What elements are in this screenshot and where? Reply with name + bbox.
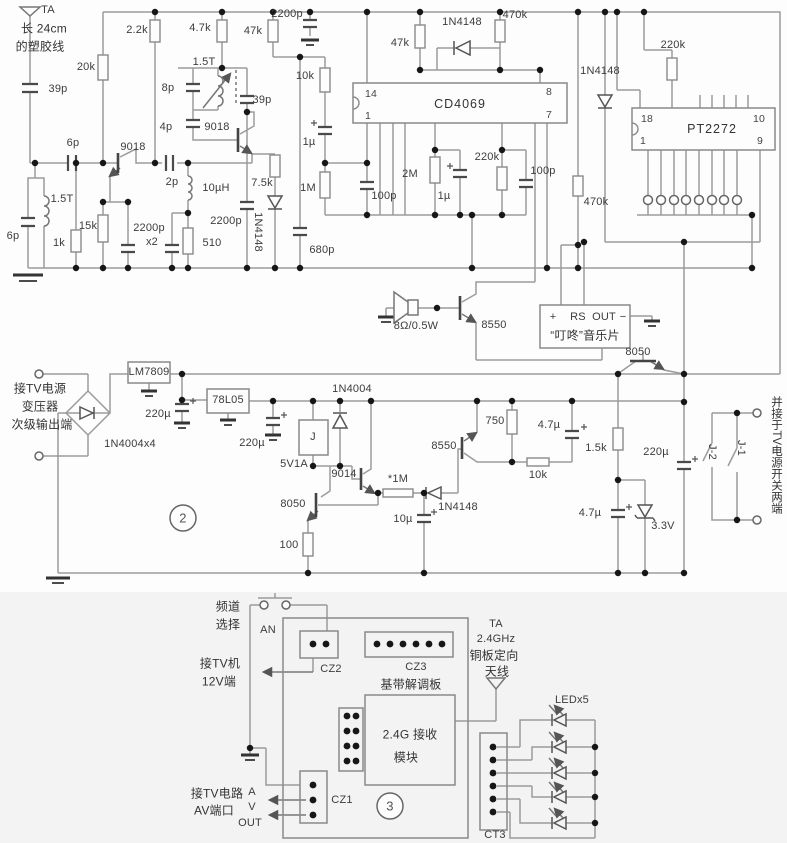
label-cap-2200p-3: 2200p bbox=[271, 8, 303, 20]
label-cz2: CZ2 bbox=[320, 663, 341, 675]
label-cap-100p-1: 100p bbox=[371, 190, 396, 202]
label-pin-7: 7 bbox=[546, 109, 552, 121]
label-res-10k-1: 10k bbox=[296, 70, 314, 82]
label-x2: x2 bbox=[146, 236, 158, 248]
schematic-canvas bbox=[0, 0, 787, 843]
label-speaker: 8Ω/0.5W bbox=[394, 320, 438, 332]
label-cap-220u-2: 220µ bbox=[239, 437, 265, 449]
label-module-2: 模块 bbox=[394, 749, 418, 766]
label-res-750: 750 bbox=[486, 415, 505, 427]
label-antenna2-type: 铜板定向 bbox=[470, 647, 519, 664]
label-pin-8: 8 bbox=[546, 86, 552, 98]
label-antenna2-freq: 2.4GHz bbox=[477, 633, 516, 645]
label-cz1: CZ1 bbox=[331, 794, 352, 806]
label-music-plus: + bbox=[550, 311, 557, 323]
label-res-15k: 15k bbox=[79, 220, 97, 232]
label-q8550-1: 8550 bbox=[481, 319, 506, 331]
label-coil-10uh: 10µH bbox=[202, 182, 229, 194]
label-pin-10: 10 bbox=[753, 113, 765, 125]
label-res-2m: 2M bbox=[402, 168, 418, 180]
label-pin-1: 1 bbox=[365, 110, 371, 122]
label-cap-8p: 8p bbox=[162, 82, 175, 94]
label-q8050-2: 8050 bbox=[280, 498, 305, 510]
label-music-out: OUT bbox=[592, 311, 616, 323]
label-pin-14: 14 bbox=[365, 88, 377, 100]
label-channel-1: 频道 bbox=[216, 598, 240, 615]
label-relay-contact-j2: J-2 bbox=[706, 444, 718, 460]
label-pin-9: 9 bbox=[757, 135, 763, 147]
label-ic-cd4069: CD4069 bbox=[434, 97, 486, 111]
label-q8050-3: 8050 bbox=[625, 346, 650, 358]
label-res-1k: 1k bbox=[53, 237, 65, 249]
label-v: V bbox=[248, 801, 256, 813]
label-tv12-1: 接TV机 bbox=[200, 655, 240, 672]
label-cap-2p: 2p bbox=[166, 176, 179, 188]
label-pin-18: 18 bbox=[641, 113, 653, 125]
label-res-7.5k: 7.5k bbox=[251, 177, 273, 189]
label-av-2: AV端口 bbox=[194, 802, 234, 819]
label-res-220k-2: 220k bbox=[661, 39, 686, 51]
label-music-chip: “叮咚”音乐片 bbox=[550, 327, 619, 344]
label-q8550-2: 8550 bbox=[431, 440, 456, 452]
label-q9018-2: 9018 bbox=[204, 121, 229, 133]
label-q9014: 9014 bbox=[331, 468, 356, 480]
label-power-in-2: 变压器 bbox=[22, 398, 59, 415]
label-ct3: CT3 bbox=[484, 829, 505, 841]
label-baseband-board: 基带解调板 bbox=[380, 676, 441, 693]
label-cap-6p-2: 6p bbox=[7, 230, 20, 242]
label-78l05: 78L05 bbox=[212, 394, 244, 406]
label-res-470k-1: 470k bbox=[503, 9, 528, 21]
label-res-47k-1: 47k bbox=[244, 25, 262, 37]
label-d-1n4148-1: 1N4148 bbox=[252, 212, 264, 252]
label-d-1n4148-4: 1N4148 bbox=[438, 501, 478, 513]
label-module-1: 2.4G 接收 bbox=[383, 726, 438, 743]
label-d-1n4148-2: 1N4148 bbox=[442, 16, 482, 28]
label-5v1a: 5V1A bbox=[280, 458, 308, 470]
label-cap-39p-1: 39p bbox=[49, 83, 68, 95]
label-res-1.5k: 1.5k bbox=[585, 442, 607, 454]
label-d-1n4004: 1N4004 bbox=[332, 383, 372, 395]
label-section-2: 2 bbox=[179, 511, 186, 526]
label-cap-1u-2: 1µ bbox=[438, 190, 451, 202]
label-relay-j: J bbox=[310, 431, 316, 443]
label-cap-2200p-x2: 2200p bbox=[133, 222, 165, 234]
label-power-in-1: 接TV电源 bbox=[14, 380, 66, 397]
label-cap-39p-2: 39p bbox=[253, 94, 272, 106]
label-zener-3.3v: 3.3V bbox=[651, 520, 674, 532]
label-cap-220u-3: 220µ bbox=[643, 446, 669, 458]
label-coil-1.5t-2: 1.5T bbox=[193, 56, 216, 68]
label-parallel-tv-switch: 并接于TV电源开关两端 bbox=[768, 396, 784, 514]
label-cap-4p: 4p bbox=[160, 121, 173, 133]
label-ic-pt2272: PT2272 bbox=[687, 122, 737, 136]
label-res-2.2k: 2.2k bbox=[126, 24, 148, 36]
label-relay-contact-j1: J-1 bbox=[735, 440, 747, 456]
label-res-4.7k: 4.7k bbox=[189, 22, 211, 34]
label-antenna-wire: 的塑胶线 bbox=[16, 38, 65, 55]
label-channel-2: 选择 bbox=[216, 616, 240, 633]
label-cap-2200p-2: 2200p bbox=[210, 215, 242, 227]
label-antenna2-name: 天线 bbox=[485, 663, 509, 680]
label-antenna2-ta: TA bbox=[489, 618, 503, 630]
label-res-20k: 20k bbox=[77, 61, 95, 73]
label-power-in-3: 次级输出端 bbox=[11, 416, 72, 433]
label-res-10k-2: 10k bbox=[529, 469, 547, 481]
label-av-1: 接TV电路 bbox=[191, 785, 243, 802]
circuit-schematic: TA 长 24cm 的塑胶线 39p 6p 1.5T 6p 1k 15k 20k… bbox=[0, 0, 787, 843]
label-q9018-1: 9018 bbox=[120, 141, 145, 153]
label-res-1m: 1M bbox=[300, 182, 316, 194]
label-bridge-1n4004x4: 1N4004x4 bbox=[104, 438, 156, 450]
speaker-icon bbox=[394, 292, 418, 323]
label-cz3: CZ3 bbox=[405, 661, 426, 673]
label-cap-10u: 10µ bbox=[393, 513, 412, 525]
label-cap-680p: 680p bbox=[309, 244, 334, 256]
label-res-510: 510 bbox=[203, 237, 222, 249]
label-cap-1u-1: 1µ bbox=[303, 136, 316, 148]
label-pin-1b: 1 bbox=[640, 135, 646, 147]
label-tv12-2: 12V端 bbox=[202, 673, 236, 690]
label-coil-1.5t-1: 1.5T bbox=[51, 193, 74, 205]
label-antenna-length: 长 24cm bbox=[21, 20, 67, 37]
label-res-1m-star: *1M bbox=[388, 473, 408, 485]
label-cap-4.7u-2: 4.7µ bbox=[579, 507, 601, 519]
label-a: A bbox=[248, 786, 256, 798]
label-res-220k-1: 220k bbox=[475, 151, 500, 163]
label-section-3: 3 bbox=[386, 799, 393, 814]
label-res-47k-2: 47k bbox=[391, 37, 409, 49]
label-music-minus: − bbox=[620, 311, 627, 323]
label-button-an: AN bbox=[260, 624, 276, 636]
label-cap-4.7u-1: 4.7µ bbox=[538, 419, 560, 431]
label-d-1n4148-3: 1N4148 bbox=[580, 65, 620, 77]
label-music-rs: RS bbox=[570, 311, 586, 323]
label-out: OUT bbox=[238, 817, 262, 829]
label-lm7809: LM7809 bbox=[129, 366, 170, 378]
antenna-icon bbox=[20, 7, 40, 16]
label-cap-100p-2: 100p bbox=[530, 165, 555, 177]
label-res-100: 100 bbox=[280, 539, 299, 551]
label-cap-6p-1: 6p bbox=[67, 137, 80, 149]
label-res-470k-2: 470k bbox=[584, 196, 609, 208]
label-ledx5: LEDx5 bbox=[555, 694, 589, 706]
label-antenna-ta: TA bbox=[41, 4, 55, 16]
label-cap-220u-1: 220µ bbox=[145, 408, 171, 420]
